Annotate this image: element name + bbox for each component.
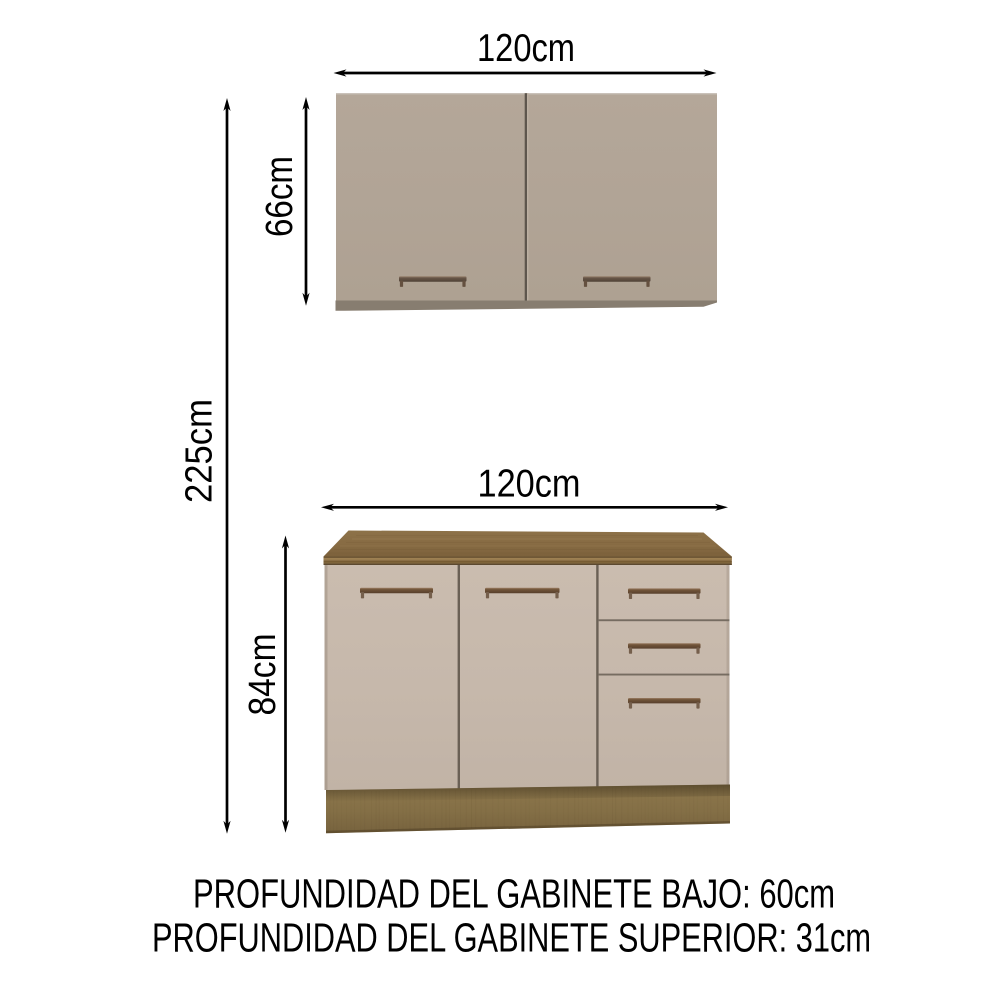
svg-text:66cm: 66cm (259, 156, 301, 237)
svg-text:120cm: 120cm (477, 27, 575, 70)
svg-text:PROFUNDIDAD DEL GABINETE BAJO:: PROFUNDIDAD DEL GABINETE BAJO: 60cm (193, 871, 835, 917)
svg-text:225cm: 225cm (179, 399, 221, 503)
svg-text:120cm: 120cm (478, 463, 581, 506)
svg-text:84cm: 84cm (242, 634, 284, 716)
svg-text:PROFUNDIDAD DEL GABINETE SUPER: PROFUNDIDAD DEL GABINETE SUPERIOR: 31cm (152, 915, 871, 961)
